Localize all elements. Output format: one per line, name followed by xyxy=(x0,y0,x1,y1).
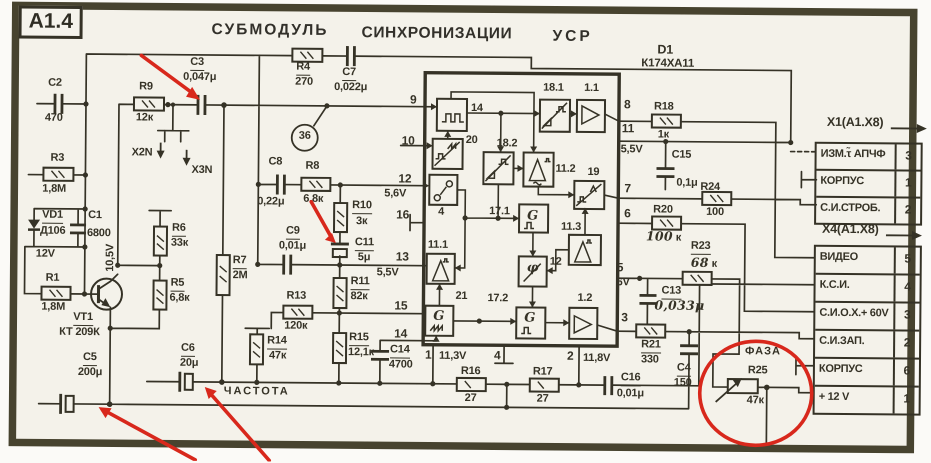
label-c6-ref: C6 xyxy=(181,343,195,357)
label-c5-value: 200μ xyxy=(78,367,102,379)
label-c3-value: 0,047μ xyxy=(183,72,216,84)
x1-row-0-label: ИЗМ.τ̃ АПЧФ xyxy=(817,144,895,170)
label-r17-value: 27 xyxy=(537,394,549,406)
title-word-2: СИНХРОНИЗАЦИИ xyxy=(361,25,512,42)
label-node-36: 36 xyxy=(297,131,313,143)
ic-block-label-18-2: 18.2 xyxy=(497,138,518,150)
label-r24-ref: R24 xyxy=(700,182,720,194)
ic-pin-3: 3 xyxy=(621,311,628,324)
label-c11-value: 5μ xyxy=(358,252,371,264)
label-r20-value-unit: к xyxy=(673,232,681,244)
label-faza: ФАЗА xyxy=(745,346,781,358)
connector-x1-row-0: ИЗМ.τ̃ АПЧФ3 xyxy=(816,144,920,172)
ic-pin-4: 4 xyxy=(494,349,501,362)
label-r5-value: 6,8к xyxy=(169,293,189,305)
ic-pin-9: 9 xyxy=(410,94,417,107)
label-r15-value: 12,1к xyxy=(348,347,374,359)
ic-block-label-14: 14 xyxy=(471,103,483,115)
label-r4-ref: R4 xyxy=(296,62,310,76)
label-r23-value-hand: 68 xyxy=(691,255,709,270)
ic-block-label-11-2: 11.2 xyxy=(555,164,575,176)
label-c1-ref: C1 xyxy=(88,210,102,222)
label-c5-ref: C5 xyxy=(83,352,97,366)
label-x3n: X3N xyxy=(191,165,212,177)
x4-row-5-pin: 1 xyxy=(893,387,919,413)
label-r8-ref: R8 xyxy=(305,161,319,173)
x1-row-1-pin: 1 xyxy=(894,171,920,196)
x4-row-1-pin: 4 xyxy=(893,275,919,301)
ic-pin-13: 13 xyxy=(396,250,409,263)
label-r20-value: 100 к xyxy=(646,229,681,244)
ic-block-label-11-1: 11.1 xyxy=(428,240,448,252)
label-r11-ref: R11 xyxy=(351,276,370,290)
label-r20-value-hand: 100 xyxy=(646,228,673,243)
label-r23-value: 68 к xyxy=(691,256,717,271)
ic-block-label-12: 12 xyxy=(550,257,562,269)
label-chastota: ЧАСТОТА xyxy=(224,386,290,398)
label-r23-ref: R23 xyxy=(691,241,711,255)
ic-pin-7: 7 xyxy=(624,182,631,195)
ic-pin-14: 14 xyxy=(394,327,407,340)
label-c11-ref: C11 xyxy=(355,237,374,251)
label-voltage-12v: 12V xyxy=(36,249,55,261)
title-word-3: УСР xyxy=(552,29,592,46)
label-r13-ref: R13 xyxy=(286,291,306,303)
label-r16-ref: R16 xyxy=(461,366,481,378)
ic-pin-1: 1 xyxy=(425,349,432,362)
label-c13-value: 0,033μ xyxy=(654,298,704,312)
schematic-sheet: A1.4 СУБМОДУЛЬ СИНХРОНИЗАЦИИ УСР D1 К174… xyxy=(0,0,931,463)
label-r10-ref: R10 xyxy=(352,200,372,214)
connector-x1-table: ИЗМ.τ̃ АПЧФ3 КОРПУС1 С.И.СТРОБ.2 xyxy=(814,142,923,226)
label-voltage-6v: 6V xyxy=(617,277,630,289)
label-c8-ref: C8 xyxy=(268,156,282,168)
ic-block-label-18-1: 18.1 xyxy=(543,83,564,95)
label-c2-value: 470 xyxy=(45,113,63,125)
ic-pin-8: 8 xyxy=(624,98,631,111)
ic-glyph-generator-17-2: G xyxy=(524,310,535,325)
ic-block-label-19: 19 xyxy=(587,167,599,179)
ic-block-label-20: 20 xyxy=(466,135,478,147)
label-r6-value: 33к xyxy=(171,238,188,250)
label-c15-ref: C15 xyxy=(672,150,692,162)
label-r25-ref: R25 xyxy=(748,365,768,377)
x4-row-4-pin: 6 xyxy=(893,359,919,385)
label-x2n: X2N xyxy=(132,147,153,159)
label-c7-value: 0,022μ xyxy=(334,82,367,94)
label-r3-value: 1,8М xyxy=(42,184,66,196)
label-r3-ref: R3 xyxy=(51,153,65,165)
ic-pin-11: 11 xyxy=(622,122,634,135)
label-r13-value: 120к xyxy=(284,321,307,333)
label-vt1-ref: VT1 xyxy=(73,312,93,326)
label-voltage-5-6v: 5,6V xyxy=(384,188,406,200)
ic-ref: D1 xyxy=(657,44,673,57)
label-c4-ref: C4 xyxy=(677,363,691,377)
ic-pin-6: 6 xyxy=(624,207,631,220)
label-r7-ref: R7 xyxy=(233,255,247,269)
label-r24-value: 100 xyxy=(706,207,724,219)
label-r16-value: 27 xyxy=(465,393,477,405)
label-c9-value: 0,01μ xyxy=(279,241,306,253)
x4-row-2-label: С.И.О.Х.+ 60V xyxy=(815,303,893,330)
ic-block-label-1-2: 1.2 xyxy=(577,293,592,305)
connector-x1-row-2: С.И.СТРОБ.2 xyxy=(816,198,920,224)
label-r14-value: 47к xyxy=(269,350,286,362)
connector-x4-row-2: С.И.О.Х.+ 60V3 xyxy=(815,303,919,332)
label-r17-ref: R17 xyxy=(533,367,553,379)
x4-row-3-pin: 2 xyxy=(893,331,919,357)
x1-row-2-pin: 2 xyxy=(894,198,920,223)
connector-x4-table: ВИДЕО5 К.С.И.4 С.И.О.Х.+ 60V3 С.И.ЗАП.2 … xyxy=(813,245,922,416)
label-r23-value-unit: к xyxy=(709,258,717,270)
label-r9-ref: R9 xyxy=(139,81,153,93)
connector-x1-row-1: КОРПУС1 xyxy=(816,171,920,199)
label-vd1-ref: VD1 xyxy=(42,210,63,224)
label-c3-ref: C3 xyxy=(190,57,204,71)
ic-glyph-generator-21: G xyxy=(433,309,444,324)
label-r20-ref: R20 xyxy=(653,204,673,216)
x4-row-0-label: ВИДЕО xyxy=(816,247,894,274)
label-r9-value: 12к xyxy=(136,112,153,124)
label-vt1-value: КТ 209К xyxy=(59,327,100,339)
label-voltage-11-8v: 11,8V xyxy=(583,353,610,365)
label-r5-ref: R5 xyxy=(171,278,185,292)
label-c14-value: 4700 xyxy=(389,359,413,371)
ic-block-label-1-1: 1.1 xyxy=(584,83,599,95)
label-c16-ref: C16 xyxy=(621,372,641,386)
connector-x4-row-5: + 12 V1 xyxy=(815,387,919,414)
ic-block-label-21: 21 xyxy=(455,291,467,303)
x4-row-2-pin: 3 xyxy=(893,303,919,329)
labels-layer: A1.4 СУБМОДУЛЬ СИНХРОНИЗАЦИИ УСР D1 К174… xyxy=(0,0,931,463)
label-c2-ref: C2 xyxy=(48,78,62,90)
x4-row-1-label: К.С.И. xyxy=(815,275,893,302)
x1-row-1-label: КОРПУС xyxy=(816,171,894,197)
ic-pin-10: 10 xyxy=(402,134,415,147)
label-c4-value: 150 xyxy=(674,378,692,390)
label-c15-value: 0,1μ xyxy=(676,178,697,190)
label-c16-value: 0,01μ xyxy=(617,388,644,400)
label-voltage-11-3v: 11,3V xyxy=(439,351,466,363)
ic-part: К174ХА11 xyxy=(641,57,694,69)
label-r11-value: 82к xyxy=(350,291,367,303)
label-r25-value: 47к xyxy=(747,395,764,407)
title-word-1: СУБМОДУЛЬ xyxy=(212,22,329,39)
label-r8-value: 6,8к xyxy=(303,194,323,206)
module-tag: A1.4 xyxy=(19,5,84,39)
ic-block-label-11-3: 11.3 xyxy=(561,222,581,234)
connector-x4-row-1: К.С.И.4 xyxy=(815,275,919,304)
schematic-photo: A1.4 СУБМОДУЛЬ СИНХРОНИЗАЦИИ УСР D1 К174… xyxy=(0,0,931,463)
label-r18-value: 1к xyxy=(658,130,669,142)
x4-row-3-label: С.И.ЗАП. xyxy=(815,331,893,358)
label-voltage-10-5v: 10,5V xyxy=(105,244,117,272)
connector-x4-row-3: С.И.ЗАП.2 xyxy=(815,331,919,360)
label-r10-value: 3к xyxy=(356,216,367,228)
label-c7-ref: C7 xyxy=(342,67,356,81)
label-r18-ref: R18 xyxy=(654,101,674,113)
connector-x4-row-0: ВИДЕО5 xyxy=(816,247,920,276)
label-r21-value: 330 xyxy=(641,354,659,366)
ic-glyph-generator-17-1: G xyxy=(527,208,538,223)
ic-pin-16: 16 xyxy=(396,208,409,221)
label-c1-value: 6800 xyxy=(87,228,111,240)
label-r6-ref: R6 xyxy=(172,223,186,237)
ic-block-label-4: 4 xyxy=(438,207,444,219)
label-r21-ref: R21 xyxy=(641,339,661,353)
ic-pin-2: 2 xyxy=(567,350,574,363)
connector-x4-row-4: КОРПУС6 xyxy=(815,359,919,388)
x1-row-0-pin: 3 xyxy=(895,144,921,169)
ic-block-label-17-1: 17.1 xyxy=(489,206,510,218)
label-c9-ref: C9 xyxy=(286,226,300,240)
connector-x1-header: X1(A1.X8) xyxy=(827,116,884,130)
ic-pin-5: 5 xyxy=(617,261,624,274)
ic-pin-15: 15 xyxy=(394,299,407,312)
label-r7-value: 2М xyxy=(233,270,248,282)
label-c8-value: 0,22μ xyxy=(257,196,284,208)
label-c6-value: 20μ xyxy=(180,358,198,370)
x1-row-2-label: С.И.СТРОБ. xyxy=(816,198,894,224)
ic-glyph-phase-12: φ xyxy=(527,260,539,275)
ic-pin-12: 12 xyxy=(398,172,411,185)
label-c14-ref: C14 xyxy=(390,344,410,358)
x4-row-4-label: КОРПУС xyxy=(815,359,893,386)
label-r1-value: 1,8М xyxy=(41,302,65,314)
label-voltage-5-5v-b: 5,5V xyxy=(621,144,643,156)
label-vd1-value: Д106 xyxy=(40,226,65,238)
ic-block-label-17-2: 17.2 xyxy=(487,293,508,305)
label-r14-ref: R14 xyxy=(267,335,287,349)
x4-row-0-pin: 5 xyxy=(894,247,920,273)
label-r4-value: 270 xyxy=(295,77,313,89)
label-r15-ref: R15 xyxy=(349,332,369,346)
x4-row-5-label: + 12 V xyxy=(815,387,893,414)
label-r1-ref: R1 xyxy=(46,273,60,285)
label-voltage-5-5v-a: 5,5V xyxy=(377,267,399,279)
